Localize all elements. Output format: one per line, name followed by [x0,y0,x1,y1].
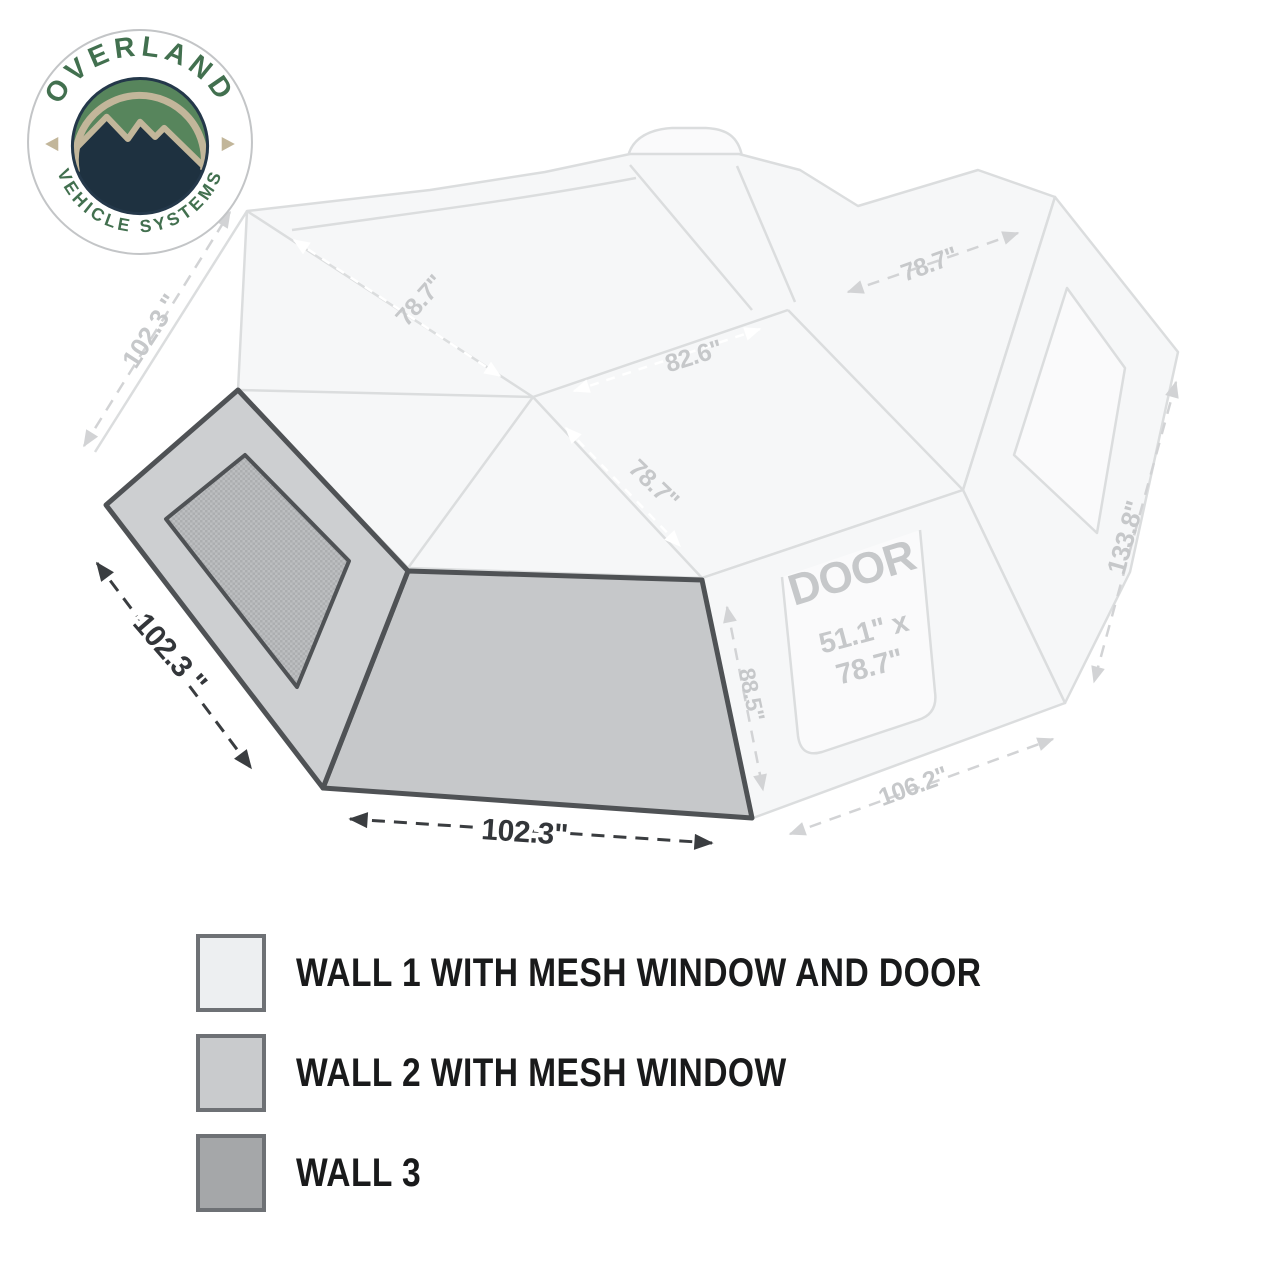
awning-handle-outline [628,128,742,157]
dim-label-left-edge: 102.3 " [116,289,185,373]
legend-label-wall3: WALL 3 [296,1151,421,1196]
legend: WALL 1 WITH MESH WINDOW AND DOOR WALL 2 … [196,936,1112,1210]
legend-swatch-wall1 [196,934,266,1012]
legend-item-wall2: WALL 2 WITH MESH WINDOW [196,1036,1112,1110]
legend-item-wall3: WALL 3 [196,1136,1112,1210]
legend-item-wall1: WALL 1 WITH MESH WINDOW AND DOOR [196,936,1112,1010]
page: 78.7" 82.6" 78.7" 78.7" 133.8" 88.5" 106… [0,0,1280,1280]
legend-swatch-wall3 [196,1134,266,1212]
legend-label-wall1: WALL 1 WITH MESH WINDOW AND DOOR [296,951,981,996]
legend-swatch-wall2 [196,1034,266,1112]
dim-label-wall3-width: 102.3" [480,813,568,852]
brand-badge: OVERLAND VEHICLE SYSTEMS [24,26,256,258]
legend-label-wall2: WALL 2 WITH MESH WINDOW [296,1051,787,1096]
